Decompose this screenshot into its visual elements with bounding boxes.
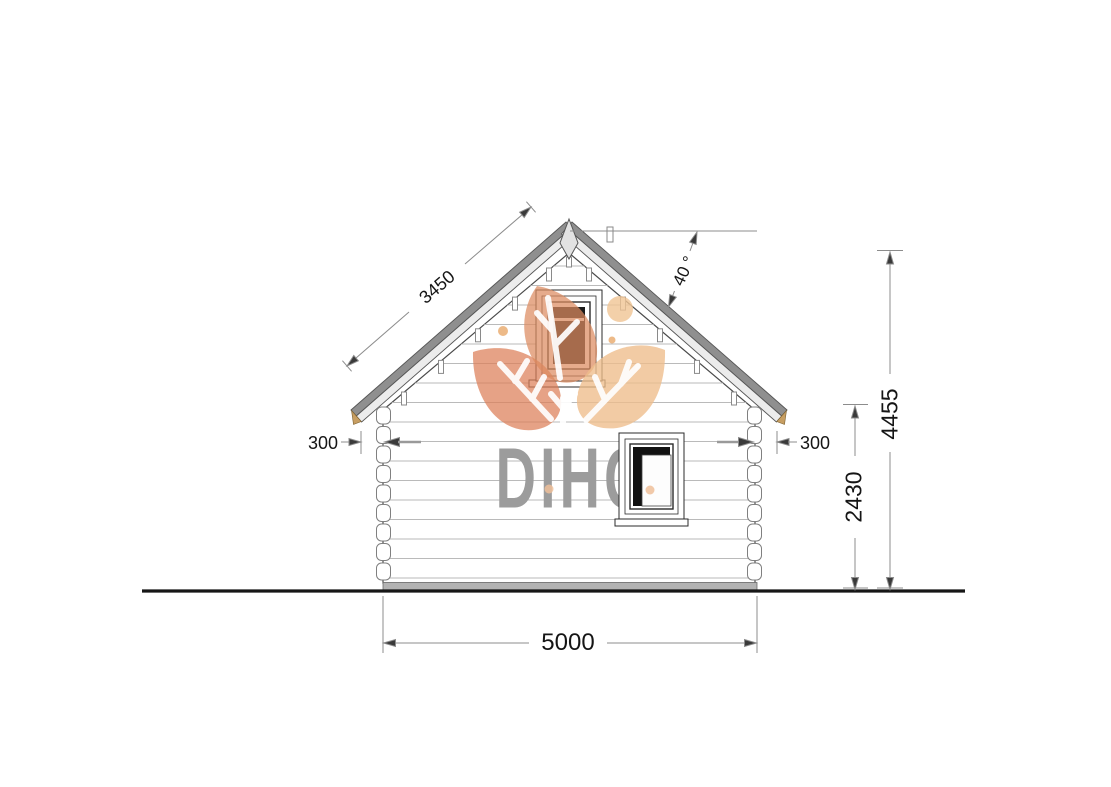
leaf-group [473,286,665,495]
dim-overhang-right: 300 [797,434,833,452]
dim-overhang-left: 300 [305,434,341,452]
elevation-canvas: DIHC [0,0,1111,787]
leaf-dot [498,326,508,336]
dim-total-height: 4455 [879,385,902,442]
watermark-leaf-logo [0,0,1111,787]
dim-wall-height: 2430 [843,468,866,525]
leaf-dot [646,486,655,495]
leaf-dot [609,337,616,344]
dim-base-width: 5000 [538,631,597,655]
leaf-dot [607,296,633,322]
leaf-dot [545,485,554,494]
